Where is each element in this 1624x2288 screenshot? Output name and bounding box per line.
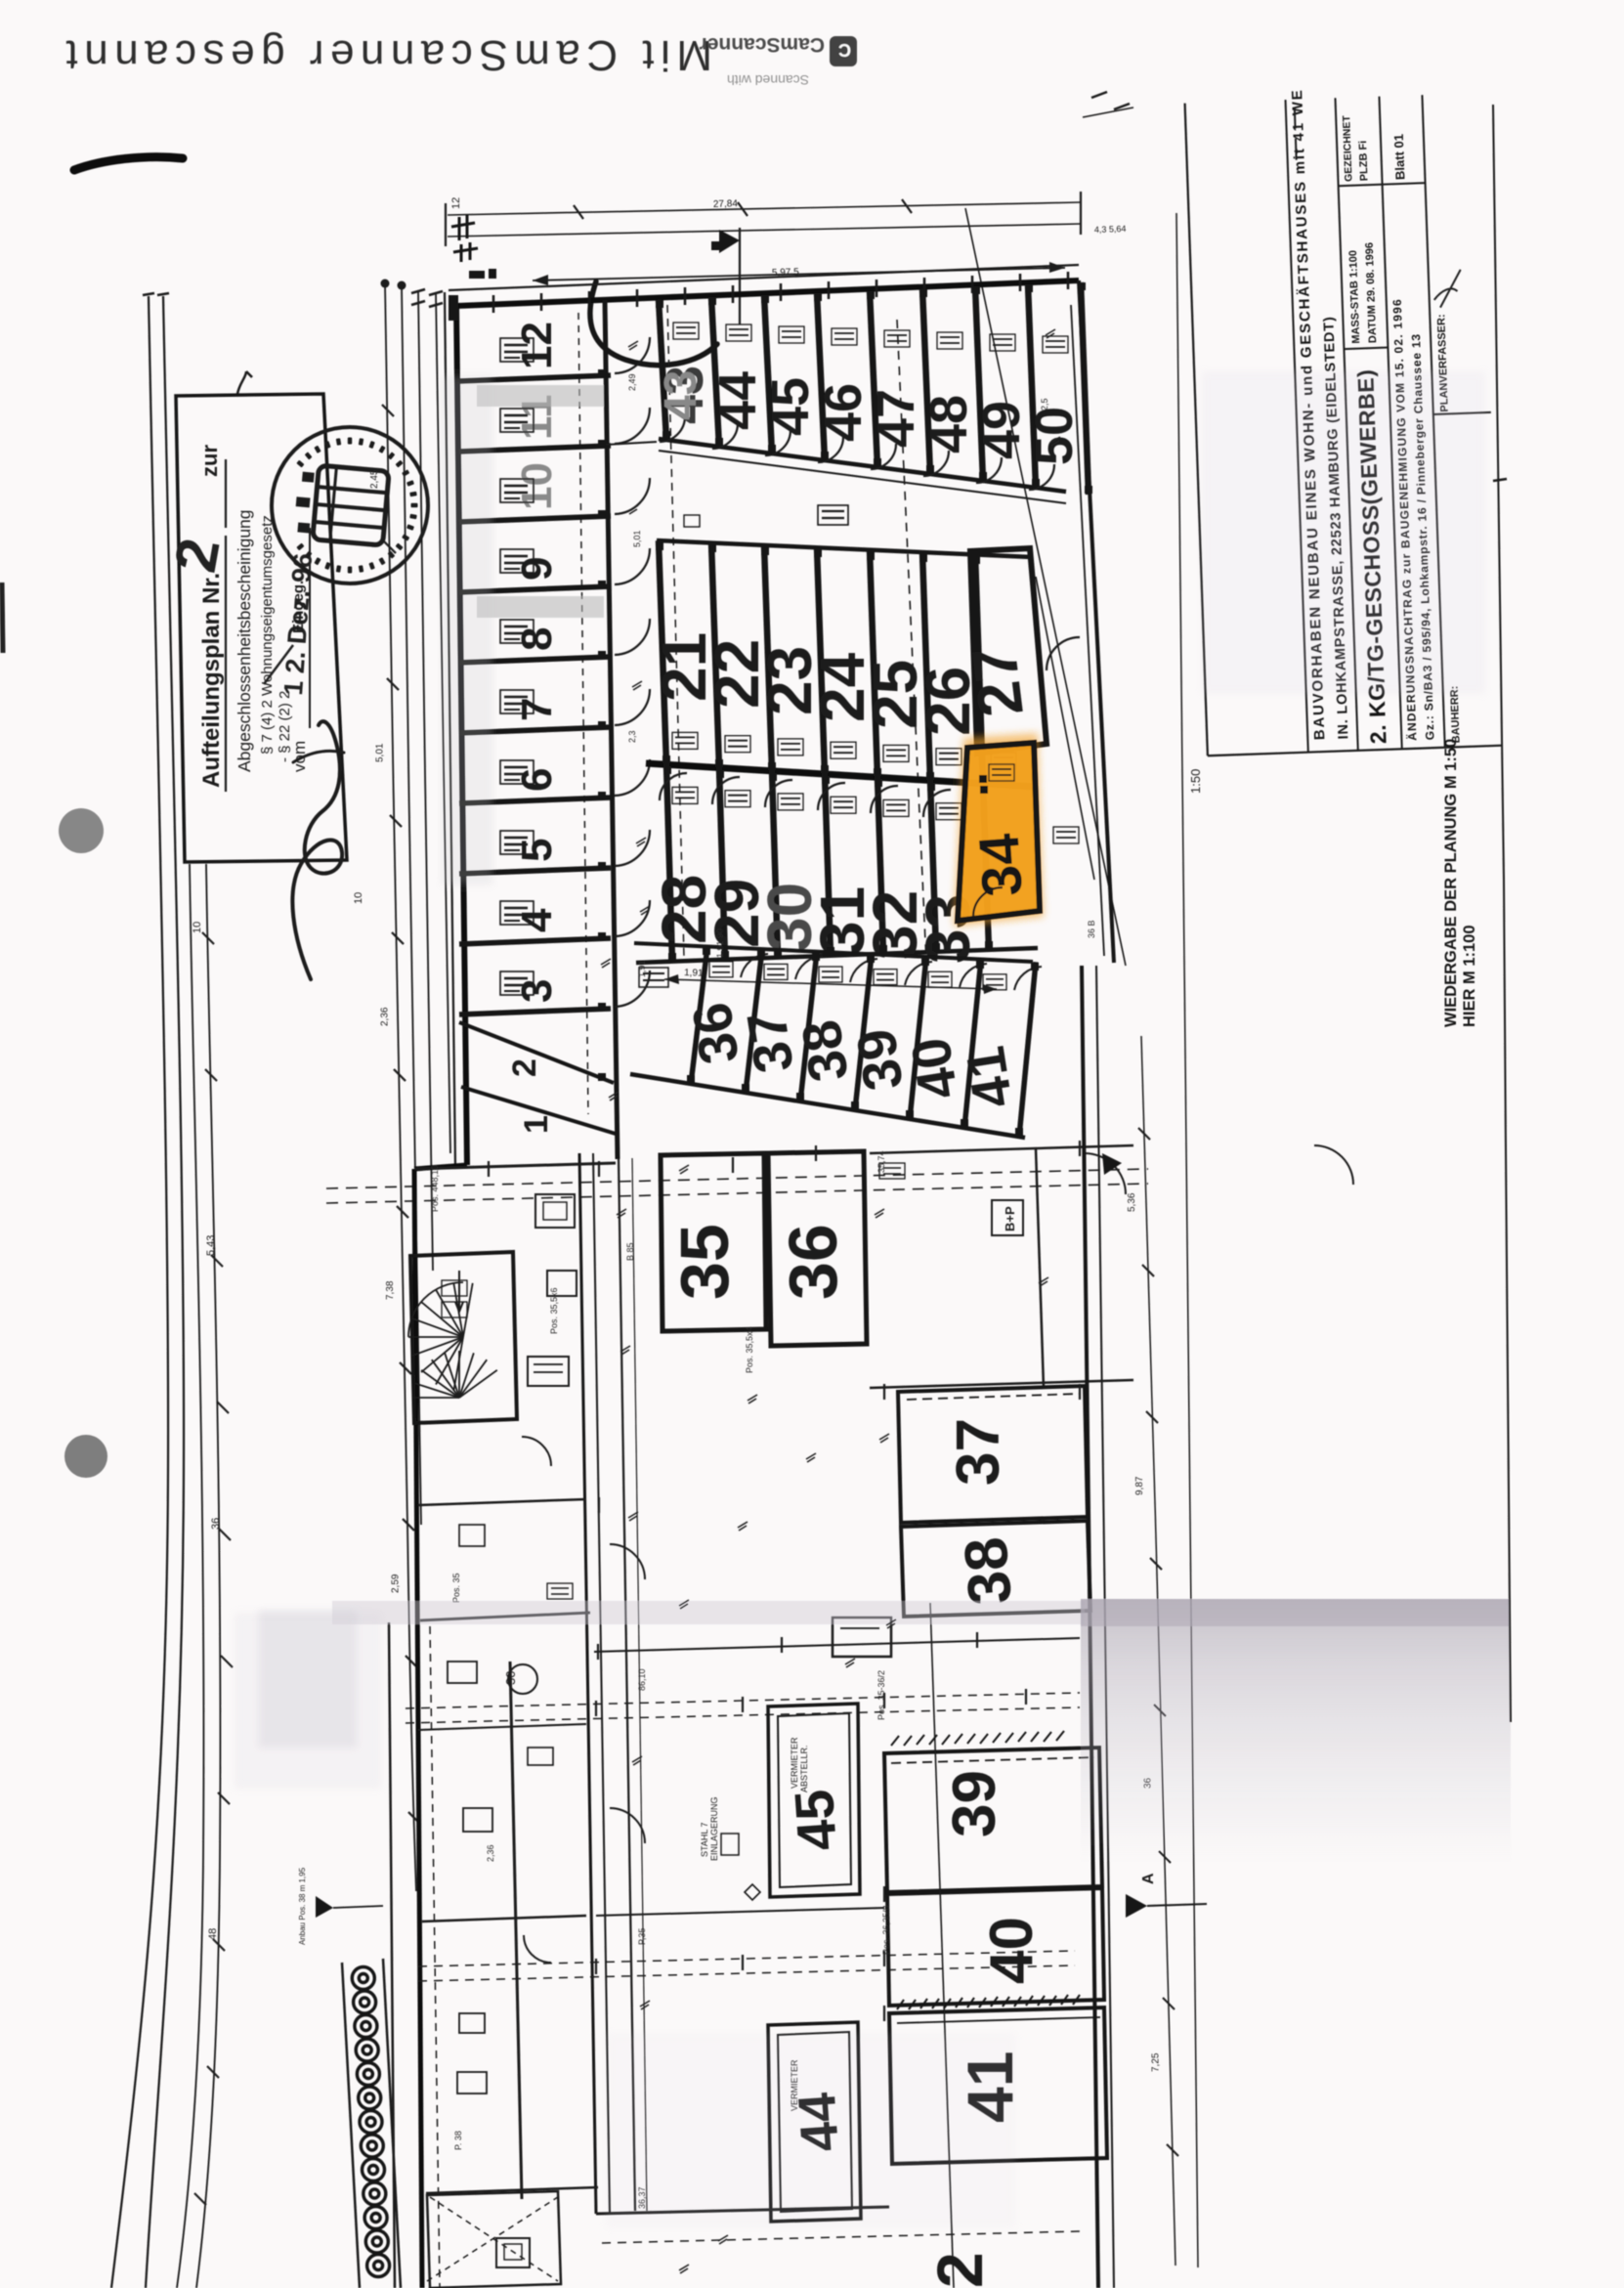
svg-text:39: 39 xyxy=(941,1770,1008,1837)
svg-text:40: 40 xyxy=(978,1917,1046,1984)
svg-text:35: 35 xyxy=(666,1224,743,1300)
svg-text:B+P: B+P xyxy=(1003,1206,1017,1231)
svg-text:36: 36 xyxy=(775,1224,851,1300)
svg-text:2,36: 2,36 xyxy=(486,1844,495,1862)
svg-text:Aufteilungsplan Nr.: Aufteilungsplan Nr. xyxy=(198,573,225,788)
svg-text:1: 1 xyxy=(518,1115,555,1134)
svg-text:2,49: 2,49 xyxy=(627,373,637,391)
svg-text:2,59: 2,59 xyxy=(391,1574,402,1593)
svg-text:2: 2 xyxy=(506,1058,543,1077)
svg-text:5,01: 5,01 xyxy=(374,743,385,762)
svg-text:3: 3 xyxy=(513,979,561,1003)
svg-text:CamScanner: CamScanner xyxy=(700,33,825,56)
svg-text:Abgeschlossenheitsbescheinigun: Abgeschlossenheitsbescheinigung xyxy=(235,509,254,772)
svg-text:BAUHERR:: BAUHERR: xyxy=(1449,685,1463,743)
svg-text:37: 37 xyxy=(945,1418,1012,1486)
svg-text:Scanned with: Scanned with xyxy=(727,72,809,88)
svg-text:44: 44 xyxy=(708,371,767,430)
svg-text:2: 2 xyxy=(923,2252,996,2288)
svg-text:1,91: 1,91 xyxy=(637,960,647,977)
svg-text:35,74: 35,74 xyxy=(876,1150,886,1173)
svg-text:5,43: 5,43 xyxy=(205,1235,217,1256)
svg-text:1,91: 1,91 xyxy=(684,968,704,979)
svg-text:Pos. 36,35/8: Pos. 36,35/8 xyxy=(881,1905,891,1955)
svg-text:45: 45 xyxy=(761,377,820,436)
svg-text:Eingeg.: Eingeg. xyxy=(290,581,307,633)
svg-text:2,5: 2,5 xyxy=(1040,398,1049,410)
svg-text:2,36: 2,36 xyxy=(380,1007,391,1026)
svg-text:10: 10 xyxy=(353,892,364,904)
svg-text:5,01: 5,01 xyxy=(632,530,642,547)
svg-text:7,38: 7,38 xyxy=(385,1280,396,1300)
svg-text:41: 41 xyxy=(954,1043,1024,1112)
svg-text:2,3: 2,3 xyxy=(627,730,637,743)
svg-text:7,25: 7,25 xyxy=(1151,2052,1162,2072)
svg-text:38: 38 xyxy=(952,1534,1025,1608)
svg-text:C: C xyxy=(838,40,851,60)
svg-text:48: 48 xyxy=(919,395,978,453)
svg-text:zur: zur xyxy=(197,445,222,477)
svg-text:5,36: 5,36 xyxy=(1127,1192,1137,1212)
svg-text:12: 12 xyxy=(450,197,462,209)
svg-text:47: 47 xyxy=(867,389,925,448)
svg-text:6: 6 xyxy=(513,768,561,792)
svg-text:9,87: 9,87 xyxy=(1134,1476,1145,1495)
svg-text:45: 45 xyxy=(783,1788,848,1853)
svg-text:Mit CamScanner gescannt: Mit CamScanner gescannt xyxy=(60,31,712,79)
svg-text:Anbau Pos. 38 m 1,95: Anbau Pos. 38 m 1,95 xyxy=(298,1867,307,1945)
svg-text:1:50: 1:50 xyxy=(1188,769,1203,794)
svg-text:P. 38: P. 38 xyxy=(453,2131,463,2150)
svg-text:34: 34 xyxy=(967,832,1035,899)
svg-text:GEZEICHNET: GEZEICHNET xyxy=(1341,114,1354,182)
svg-text:8: 8 xyxy=(513,627,561,651)
svg-text:ABSTELLR.: ABSTELLR. xyxy=(799,1745,809,1792)
svg-text:86,10: 86,10 xyxy=(637,1668,647,1691)
svg-text:A: A xyxy=(1140,1873,1157,1884)
svg-text:Pos. 35: Pos. 35 xyxy=(451,1573,461,1603)
svg-text:27,84: 27,84 xyxy=(713,198,739,210)
svg-text:36 B: 36 B xyxy=(1087,920,1096,938)
svg-text:46: 46 xyxy=(814,383,873,442)
svg-text:Pos. 448,10: Pos. 448,10 xyxy=(430,1165,440,1212)
svg-text:50: 50 xyxy=(1025,407,1084,465)
svg-text:48: 48 xyxy=(207,1928,219,1940)
svg-text:4,3 5,64: 4,3 5,64 xyxy=(1094,224,1127,235)
svg-text:27: 27 xyxy=(959,643,1037,720)
svg-text:PLZB Fi: PLZB Fi xyxy=(1357,141,1370,182)
svg-text:2,45: 2,45 xyxy=(369,469,380,489)
svg-text:5: 5 xyxy=(513,839,561,862)
svg-text:Pos. 35,5x6: Pos. 35,5x6 xyxy=(549,1287,559,1334)
svg-text:B 85: B 85 xyxy=(625,1242,635,1261)
svg-text:49: 49 xyxy=(972,401,1031,459)
svg-text:36: 36 xyxy=(210,1518,222,1530)
svg-text:1,91 90: 1,91 90 xyxy=(715,928,725,958)
svg-text:EINLAGERUNG: EINLAGERUNG xyxy=(709,1796,719,1861)
svg-text:10: 10 xyxy=(192,922,203,933)
svg-text:43: 43 xyxy=(655,370,705,420)
svg-text:VERMIETER: VERMIETER xyxy=(790,1737,799,1789)
svg-text:4: 4 xyxy=(513,908,561,932)
svg-text:9: 9 xyxy=(513,557,561,581)
svg-text:WIEDERGABE DER PLANUNG M 1:50: WIEDERGABE DER PLANUNG M 1:50 xyxy=(1442,739,1460,1027)
svg-text:7: 7 xyxy=(513,698,561,721)
svg-text:Pos. 35,5x4: Pos. 35,5x4 xyxy=(745,1326,754,1373)
svg-text:HIER M 1:100: HIER M 1:100 xyxy=(1461,925,1478,1027)
svg-text:P,35: P,35 xyxy=(637,1928,647,1945)
svg-text:STAHL 7: STAHL 7 xyxy=(700,1822,709,1857)
svg-text:§ 7 (4) 2 Wohnungseigentumsge: § 7 (4) 2 Wohnungseigentumsgesetz xyxy=(259,515,276,755)
svg-text:Blatt 01: Blatt 01 xyxy=(1391,134,1408,180)
